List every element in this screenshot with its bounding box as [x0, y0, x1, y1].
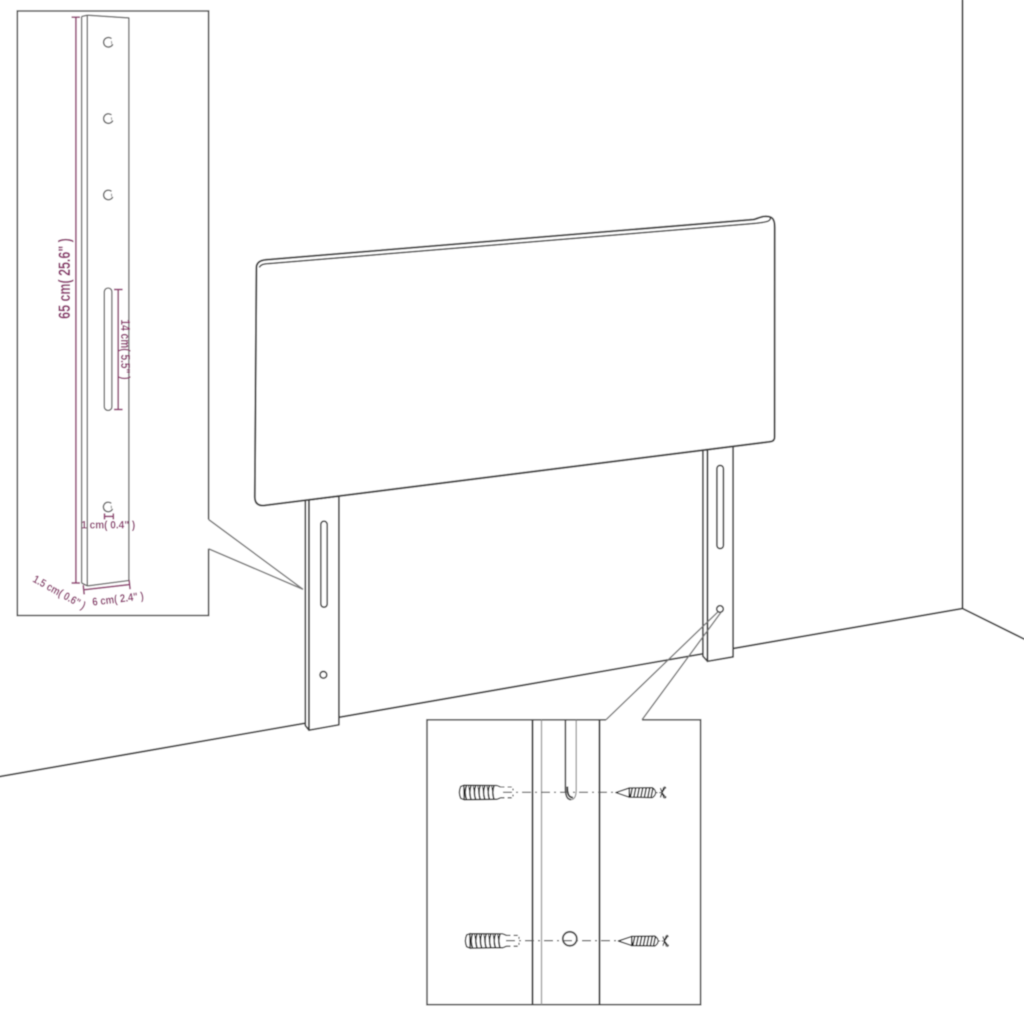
- svg-text:14 cm( 5.5" ): 14 cm( 5.5" ): [118, 319, 134, 379]
- svg-text:1 cm( 0.4" ): 1 cm( 0.4" ): [81, 520, 135, 531]
- svg-text:65 cm( 25.6" ): 65 cm( 25.6" ): [57, 238, 75, 319]
